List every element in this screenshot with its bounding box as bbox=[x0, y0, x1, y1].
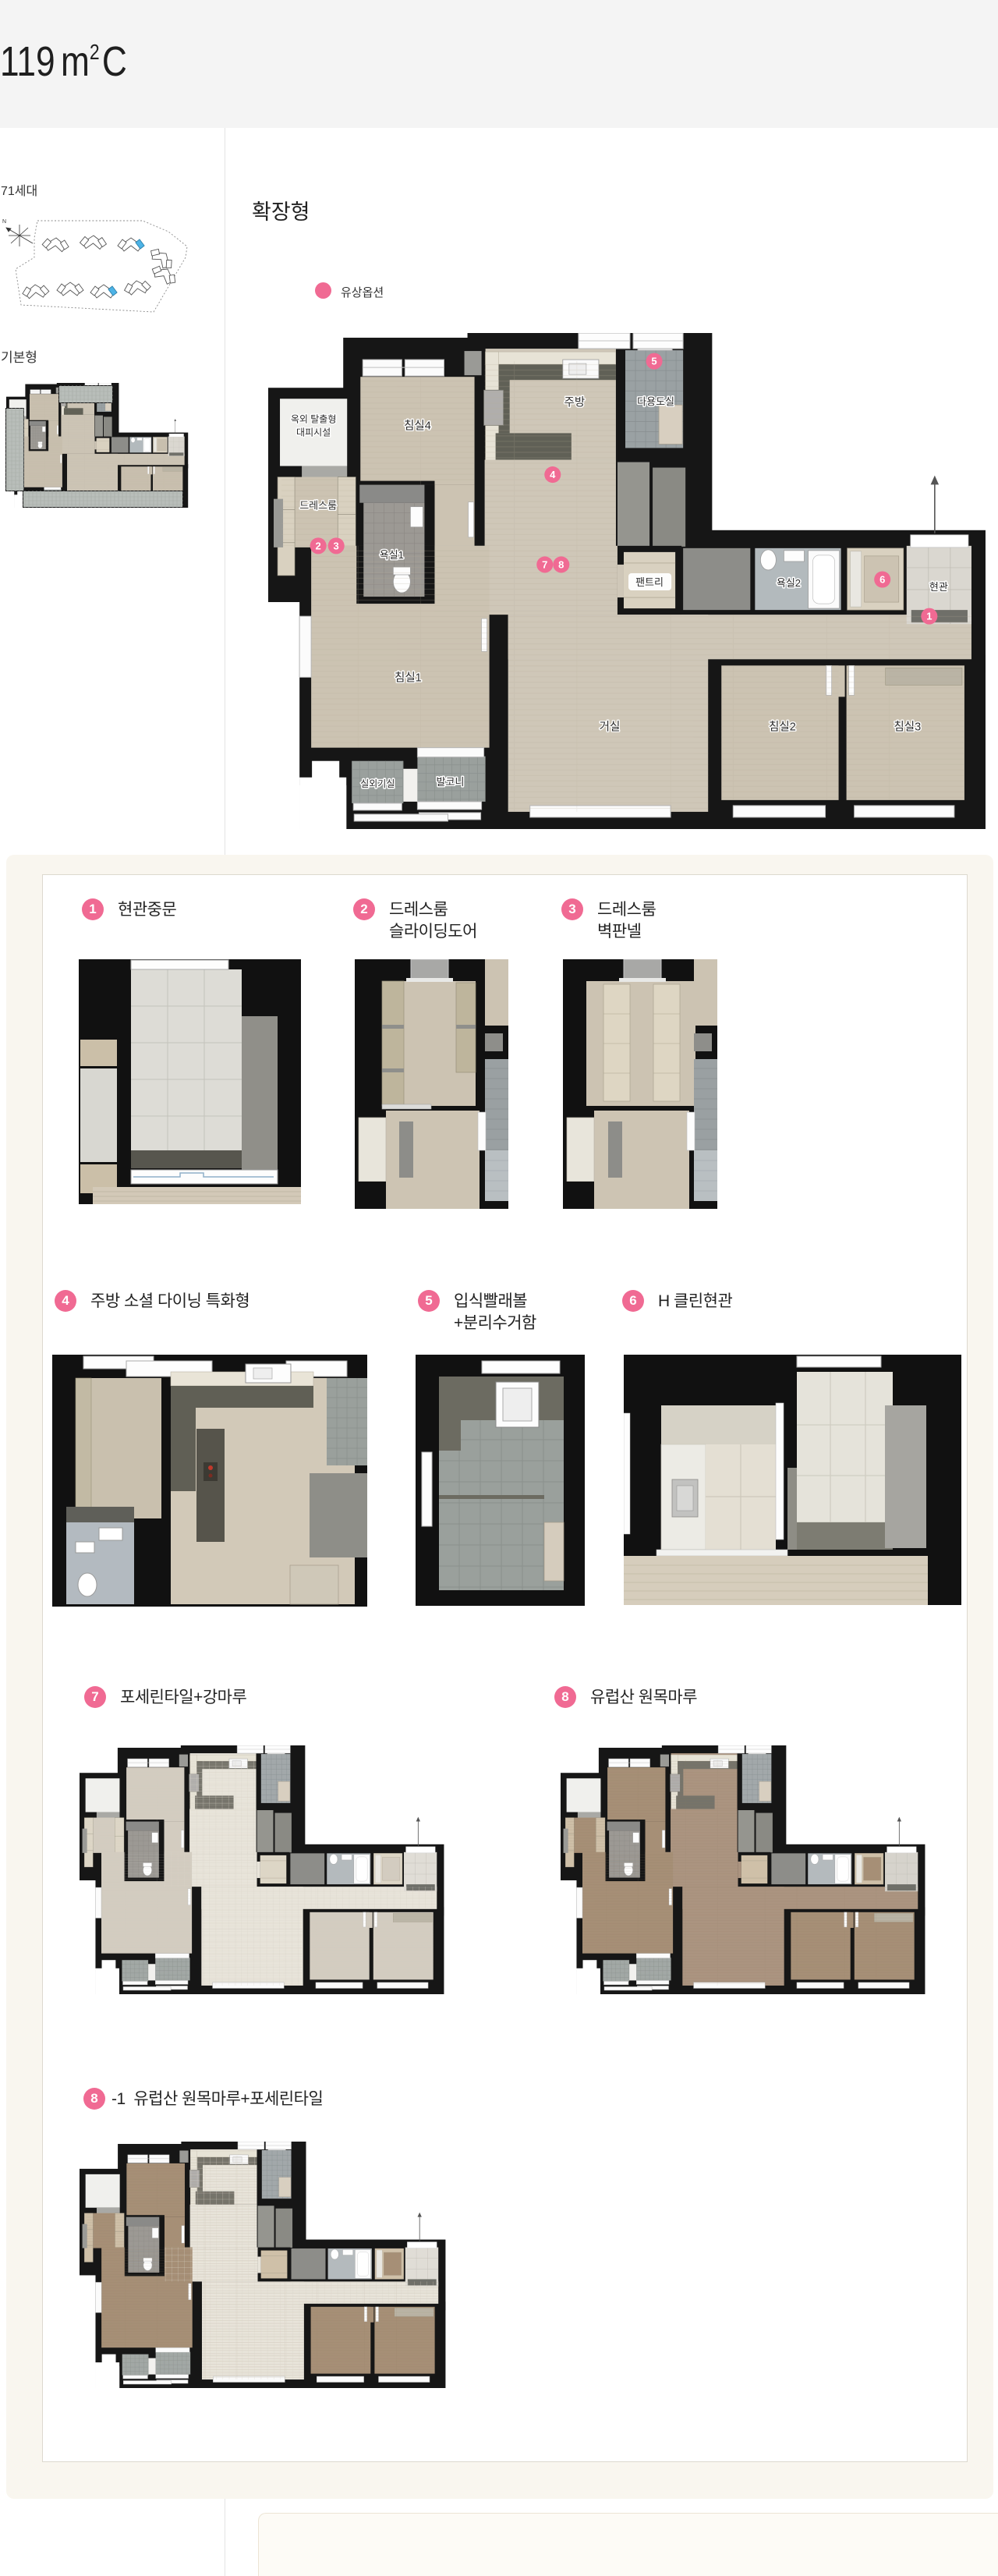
svg-text:현관: 현관 bbox=[929, 581, 948, 593]
svg-text:팬트리: 팬트리 bbox=[635, 576, 664, 588]
svg-text:실외기실: 실외기실 bbox=[360, 778, 395, 789]
svg-text:욕실2: 욕실2 bbox=[777, 577, 801, 589]
svg-text:옥외 탈출형: 옥외 탈출형 bbox=[291, 413, 337, 424]
svg-text:발코니: 발코니 bbox=[437, 776, 465, 788]
svg-text:6: 6 bbox=[879, 574, 885, 586]
svg-text:4: 4 bbox=[550, 469, 556, 480]
svg-text:2: 2 bbox=[316, 540, 321, 551]
svg-text:대피시설: 대피시설 bbox=[296, 427, 331, 438]
svg-text:N: N bbox=[2, 219, 6, 225]
svg-text:1: 1 bbox=[926, 611, 932, 622]
svg-text:5: 5 bbox=[651, 356, 656, 367]
svg-text:3: 3 bbox=[334, 540, 339, 551]
svg-text:8: 8 bbox=[558, 558, 564, 570]
svg-text:7: 7 bbox=[542, 558, 547, 570]
svg-text:다용도실: 다용도실 bbox=[637, 395, 674, 407]
